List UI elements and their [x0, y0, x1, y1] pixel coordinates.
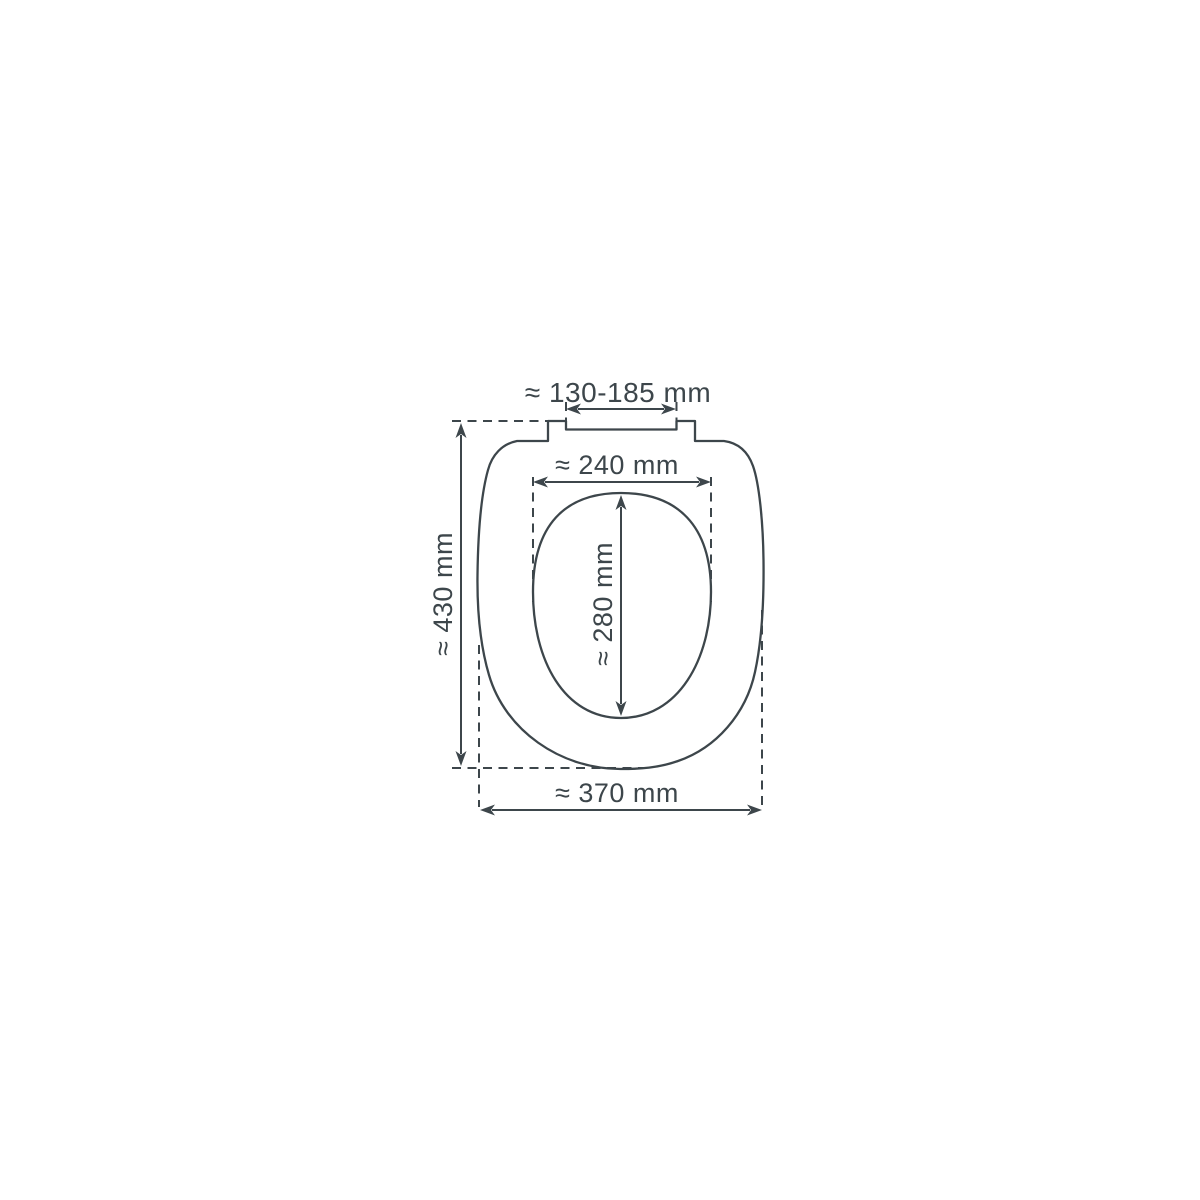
toilet-seat-dimension-diagram: ≈ 130-185 mm ≈ 240 mm ≈ 280 mm ≈ 430 mm [0, 0, 1200, 1200]
dim-outer-length: ≈ 430 mm [428, 423, 467, 766]
dimension-label-inner-width: ≈ 240 mm [555, 450, 679, 480]
dim-inner-length: ≈ 280 mm [588, 495, 627, 716]
dimension-label-hinge-width: ≈ 130-185 mm [525, 377, 711, 408]
diagram-canvas: ≈ 130-185 mm ≈ 240 mm ≈ 280 mm ≈ 430 mm [0, 0, 1200, 1200]
dimension-label-outer-length: ≈ 430 mm [428, 532, 458, 656]
dim-hinge-width: ≈ 130-185 mm [525, 377, 711, 415]
dimension-label-outer-width: ≈ 370 mm [555, 778, 679, 808]
dim-inner-width: ≈ 240 mm [533, 450, 711, 488]
dim-outer-width: ≈ 370 mm [480, 778, 762, 816]
dimension-label-inner-length: ≈ 280 mm [588, 542, 618, 666]
